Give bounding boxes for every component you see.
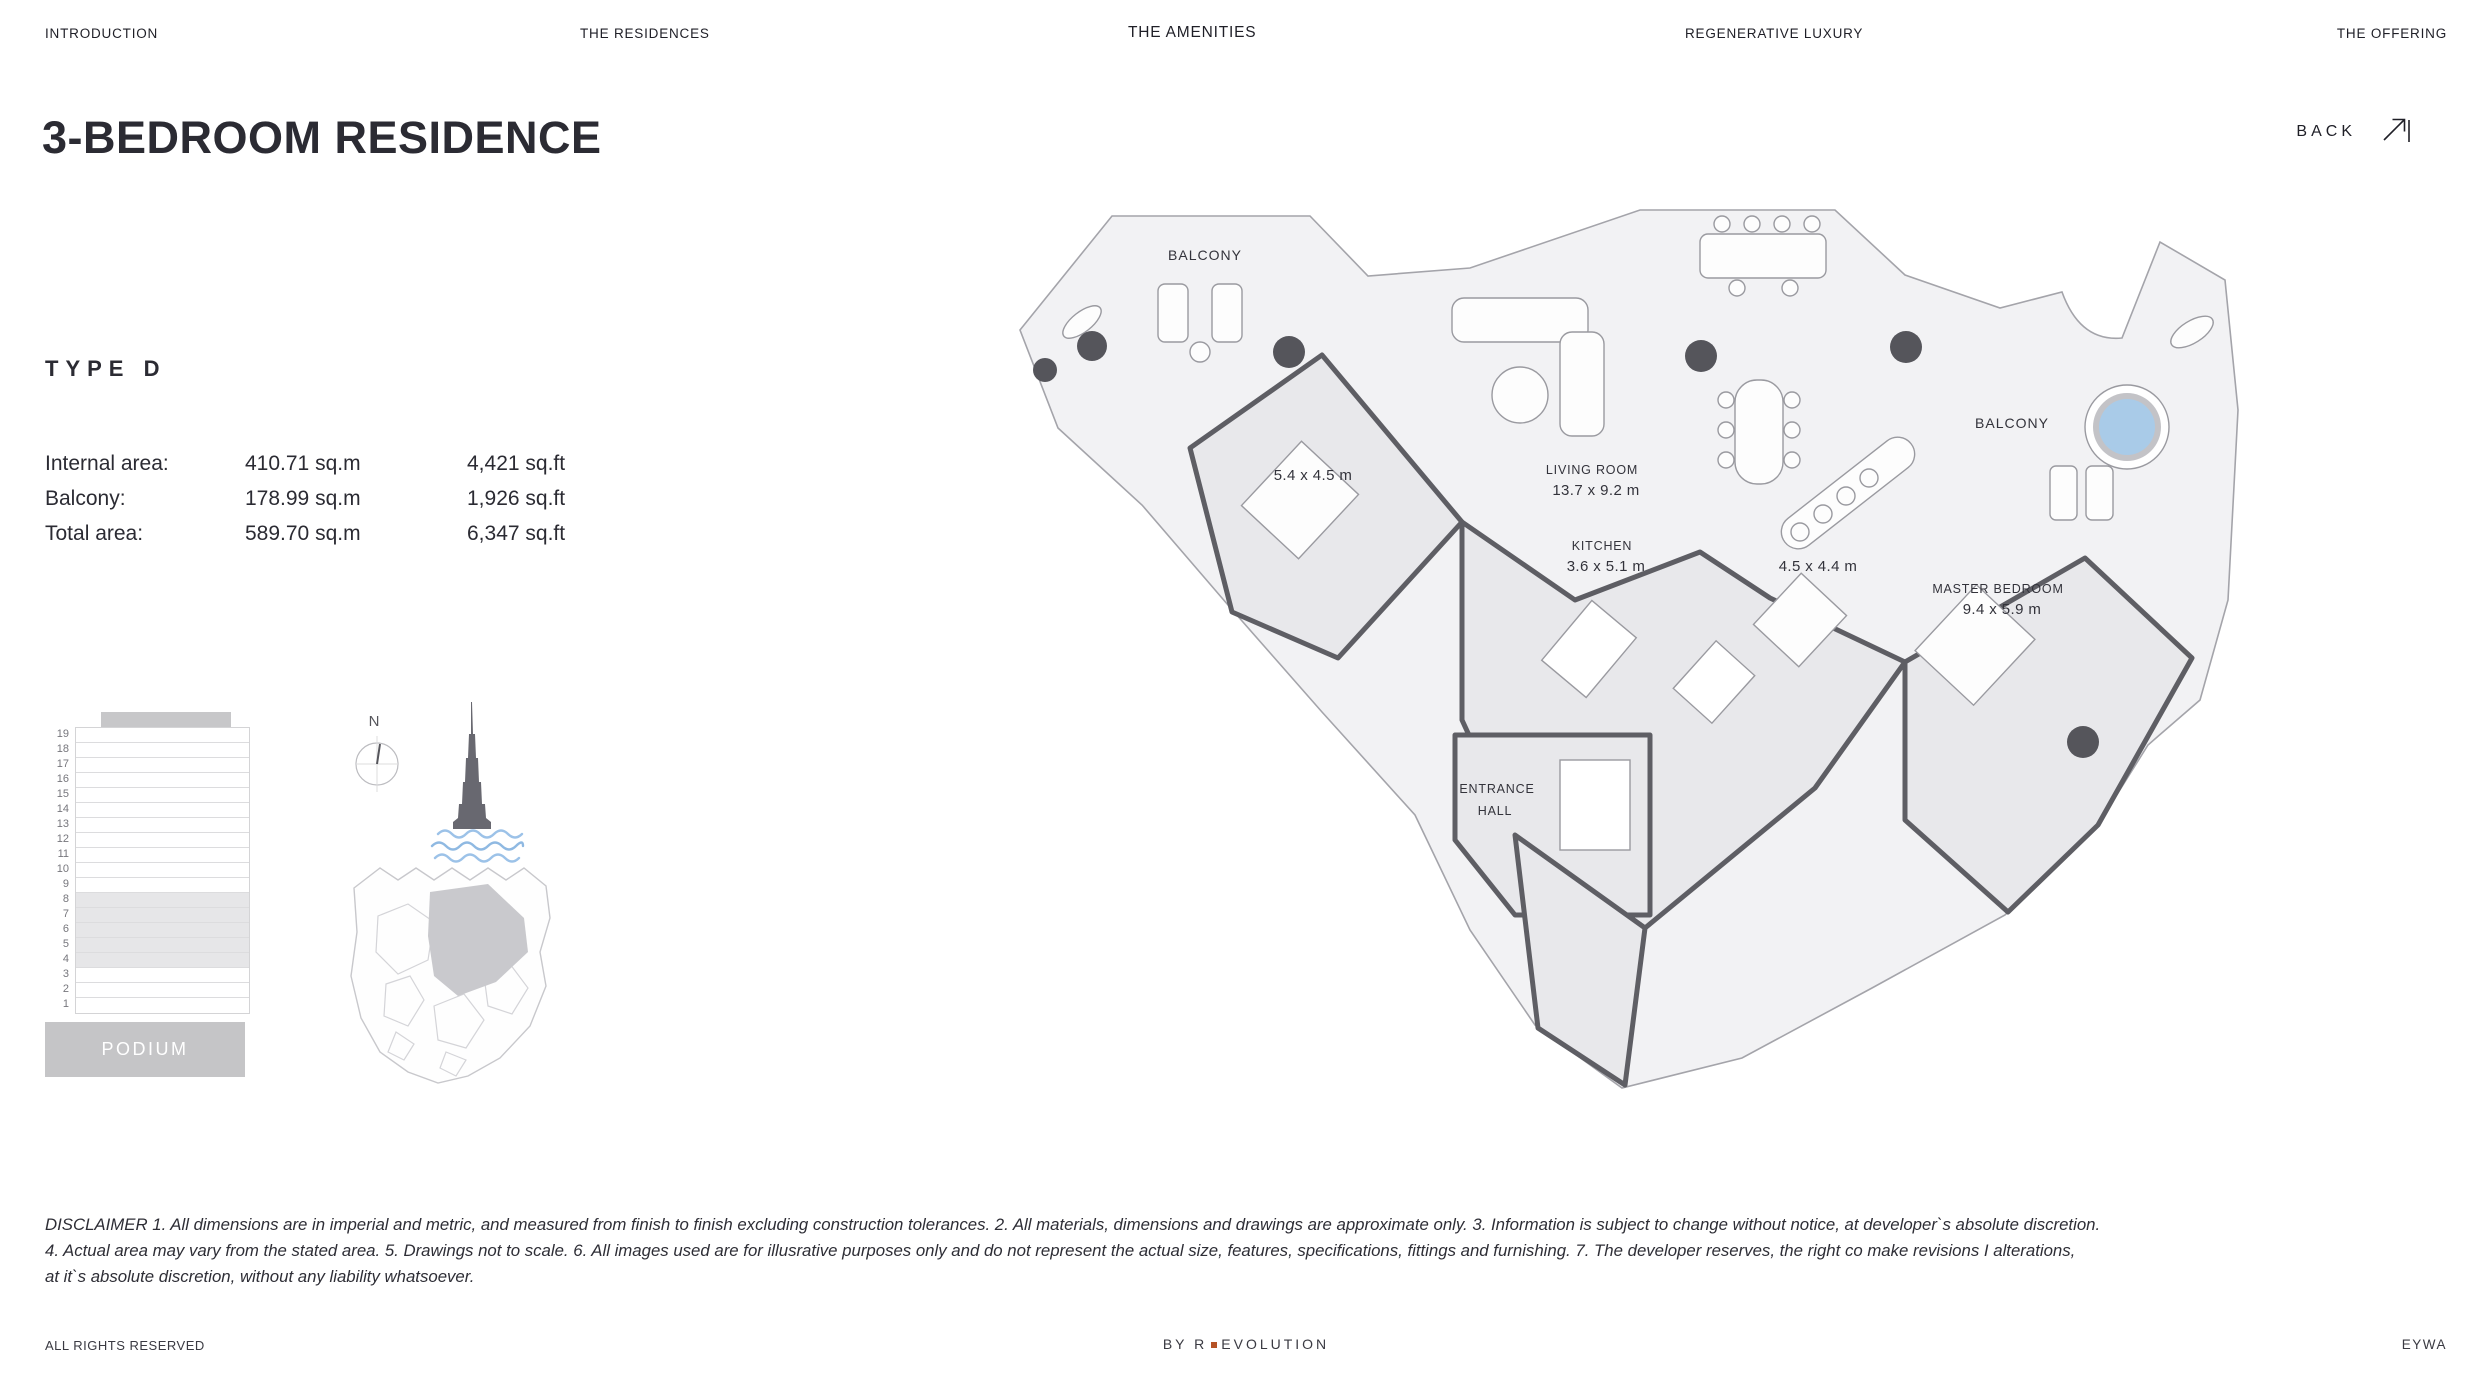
back-button[interactable]: BACK — [2296, 112, 2412, 151]
disclaimer-line: 4. Actual area may vary from the stated … — [45, 1238, 2447, 1264]
project-name: EYWA — [2402, 1337, 2447, 1352]
floor-row-18 — [76, 743, 249, 758]
building-stack-diagram: 19181716151413121110987654321 PODIUM — [45, 712, 250, 1077]
floor-number: 15 — [45, 787, 75, 802]
floor-row-6 — [76, 923, 249, 938]
area-row-imperial: 4,421 sq.ft — [467, 452, 565, 476]
floor-number: 9 — [45, 877, 75, 892]
plunge-pool-water — [2099, 399, 2155, 455]
area-row-metric: 589.70 sq.m — [245, 522, 467, 546]
floor-number: 14 — [45, 802, 75, 817]
top-navigation: INTRODUCTIONTHE RESIDENCESTHE AMENITIESR… — [0, 0, 2492, 70]
floor-number: 19 — [45, 727, 75, 742]
floor-row-4 — [76, 953, 249, 968]
brand-by: BY — [1163, 1336, 1187, 1352]
disclaimer-line: at it`s absolute discretion, without any… — [45, 1264, 2447, 1290]
label-master-bedroom: MASTER BEDROOM — [1932, 582, 2063, 596]
area-row-label: Total area: — [45, 522, 245, 546]
floor-row-5 — [76, 938, 249, 953]
compass-north-label: N — [369, 713, 380, 730]
label-bedroom-2-dims: 5.4 x 4.5 m — [1274, 467, 1353, 484]
back-label: BACK — [2296, 123, 2356, 141]
floor-row-1 — [76, 998, 249, 1013]
brand-dot — [1211, 1342, 1217, 1348]
developer-brand: BY REVOLUTION — [0, 1336, 2492, 1352]
label-balcony-right: BALCONY — [1975, 415, 2049, 431]
floor-number: 17 — [45, 757, 75, 772]
floor-row-12 — [76, 833, 249, 848]
brand-r: R — [1194, 1336, 1207, 1352]
label-entrance-hall-line1: ENTRANCE — [1459, 782, 1534, 796]
building-roof — [101, 712, 231, 727]
label-entrance-hall-line2: HALL — [1478, 804, 1512, 818]
floor-number: 11 — [45, 847, 75, 862]
floor-row-13 — [76, 818, 249, 833]
site-key-plan — [338, 856, 566, 1099]
area-row-imperial: 6,347 sq.ft — [467, 522, 565, 546]
floor-number: 3 — [45, 967, 75, 982]
disclaimer: DISCLAIMER 1. All dimensions are in impe… — [45, 1212, 2447, 1290]
floor-row-14 — [76, 803, 249, 818]
floor-number: 10 — [45, 862, 75, 877]
label-bedroom-3-dims: 4.5 x 4.4 m — [1779, 558, 1858, 575]
floor-row-9 — [76, 878, 249, 893]
floor-row-3 — [76, 968, 249, 983]
area-row-imperial: 1,926 sq.ft — [467, 487, 565, 511]
unit-type-label: TYPE D — [45, 356, 166, 382]
floor-number: 1 — [45, 997, 75, 1012]
compass: N — [350, 712, 406, 801]
floor-number: 4 — [45, 952, 75, 967]
nav-item-regenerative-luxury[interactable]: REGENERATIVE LUXURY — [1685, 26, 1863, 41]
label-balcony-left: BALCONY — [1168, 247, 1242, 263]
building-tower — [75, 727, 250, 1014]
nav-item-the-residences[interactable]: THE RESIDENCES — [580, 26, 710, 41]
area-table: Internal area:410.71 sq.m4,421 sq.ftBalc… — [45, 452, 565, 546]
nav-item-the-amenities[interactable]: THE AMENITIES — [1128, 24, 1256, 42]
floor-number: 7 — [45, 907, 75, 922]
brand-rest: EVOLUTION — [1221, 1336, 1329, 1352]
floor-row-17 — [76, 758, 249, 773]
floor-row-19 — [76, 728, 249, 743]
area-row-metric: 178.99 sq.m — [245, 487, 467, 511]
floor-row-2 — [76, 983, 249, 998]
label-kitchen: KITCHEN — [1572, 539, 1632, 553]
burj-khalifa-icon — [450, 700, 494, 845]
floor-number: 18 — [45, 742, 75, 757]
floor-number: 13 — [45, 817, 75, 832]
area-row-label: Balcony: — [45, 487, 245, 511]
floor-row-16 — [76, 773, 249, 788]
arrow-up-right-icon — [2378, 112, 2412, 151]
page-title: 3-BEDROOM RESIDENCE — [42, 112, 602, 164]
floor-number: 2 — [45, 982, 75, 997]
floor-row-10 — [76, 863, 249, 878]
floor-row-15 — [76, 788, 249, 803]
area-row-metric: 410.71 sq.m — [245, 452, 467, 476]
floor-number: 5 — [45, 937, 75, 952]
area-row-label: Internal area: — [45, 452, 245, 476]
label-living-room-dims: 13.7 x 9.2 m — [1552, 482, 1639, 499]
nav-item-the-offering[interactable]: THE OFFERING — [2337, 26, 2447, 41]
floor-number: 12 — [45, 832, 75, 847]
floor-numbers: 19181716151413121110987654321 — [45, 727, 75, 1014]
disclaimer-line: DISCLAIMER 1. All dimensions are in impe… — [45, 1212, 2447, 1238]
label-master-bedroom-dims: 9.4 x 5.9 m — [1963, 601, 2042, 618]
nav-item-introduction[interactable]: INTRODUCTION — [45, 26, 158, 41]
floor-number: 8 — [45, 892, 75, 907]
label-kitchen-dims: 3.6 x 5.1 m — [1567, 558, 1646, 575]
podium-block: PODIUM — [45, 1022, 245, 1077]
floor-row-11 — [76, 848, 249, 863]
floor-row-7 — [76, 908, 249, 923]
floor-number: 16 — [45, 772, 75, 787]
floor-plan: BALCONY LIVING ROOM 13.7 x 9.2 m KITCHEN… — [1000, 180, 2250, 1120]
floor-number: 6 — [45, 922, 75, 937]
floor-row-8 — [76, 893, 249, 908]
label-living-room: LIVING ROOM — [1546, 463, 1638, 477]
